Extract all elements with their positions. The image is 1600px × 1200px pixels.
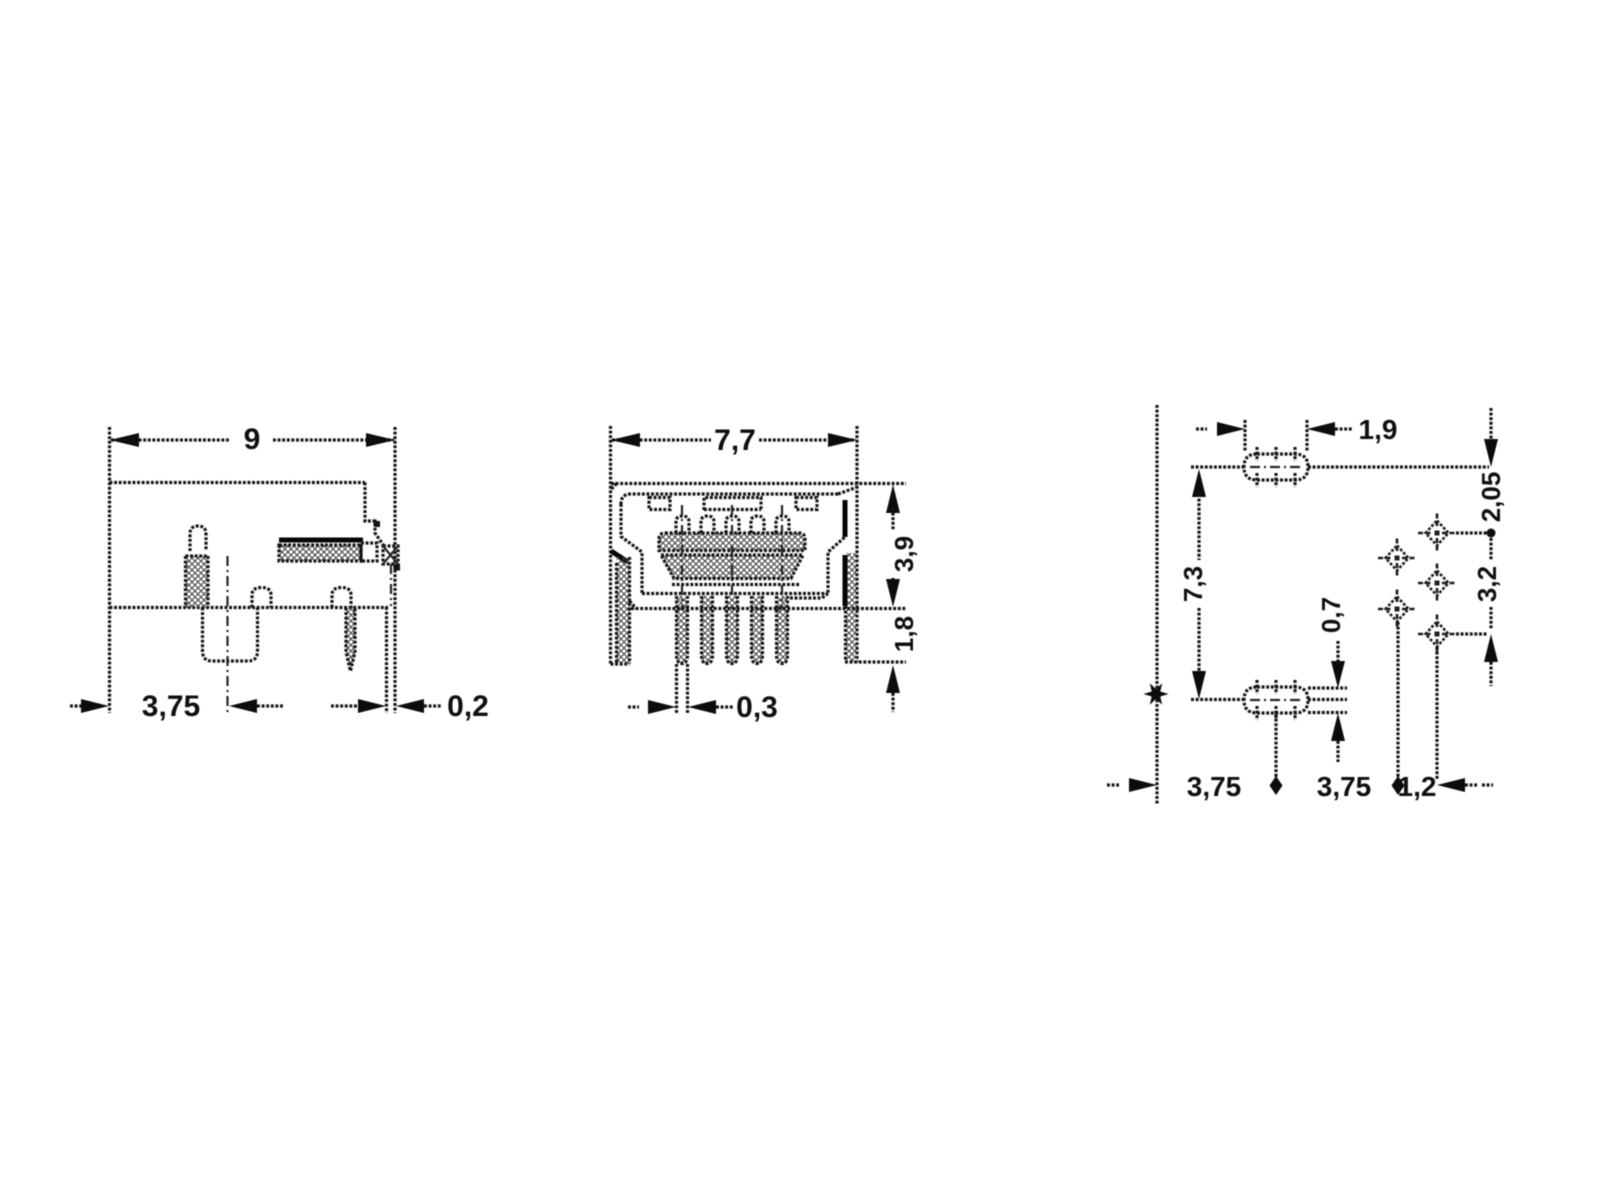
svg-text:7,7: 7,7 xyxy=(714,424,756,457)
svg-text:3,9: 3,9 xyxy=(889,536,919,572)
svg-text:3,75: 3,75 xyxy=(1317,771,1372,802)
svg-text:1,8: 1,8 xyxy=(889,616,919,652)
svg-text:9: 9 xyxy=(244,423,261,456)
svg-text:7,3: 7,3 xyxy=(1178,566,1208,602)
svg-text:0,3: 0,3 xyxy=(736,691,778,724)
svg-text:3,75: 3,75 xyxy=(1187,771,1242,802)
svg-text:0,7: 0,7 xyxy=(1316,597,1346,633)
svg-text:3,2: 3,2 xyxy=(1472,566,1502,602)
svg-text:3,75: 3,75 xyxy=(142,690,200,723)
svg-text:0,2: 0,2 xyxy=(447,690,489,723)
svg-text:1,9: 1,9 xyxy=(1359,414,1398,445)
svg-text:1,2: 1,2 xyxy=(1398,771,1437,802)
svg-text:2,05: 2,05 xyxy=(1476,472,1506,523)
